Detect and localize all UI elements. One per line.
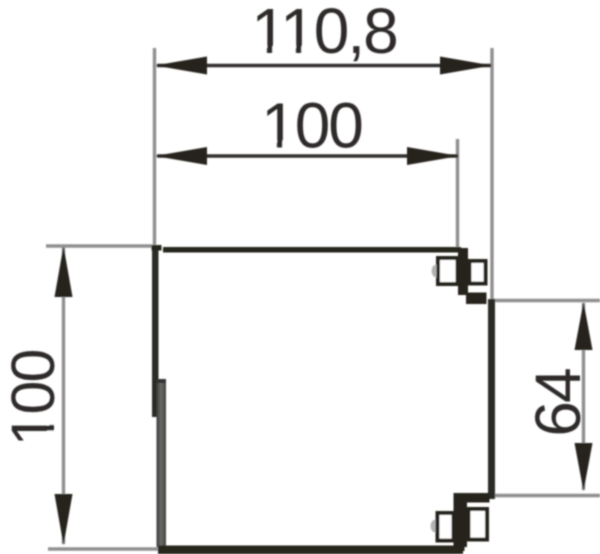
- svg-text:100: 100: [0, 351, 67, 447]
- svg-text:110,8: 110,8: [251, 0, 396, 67]
- svg-text:100: 100: [261, 90, 362, 162]
